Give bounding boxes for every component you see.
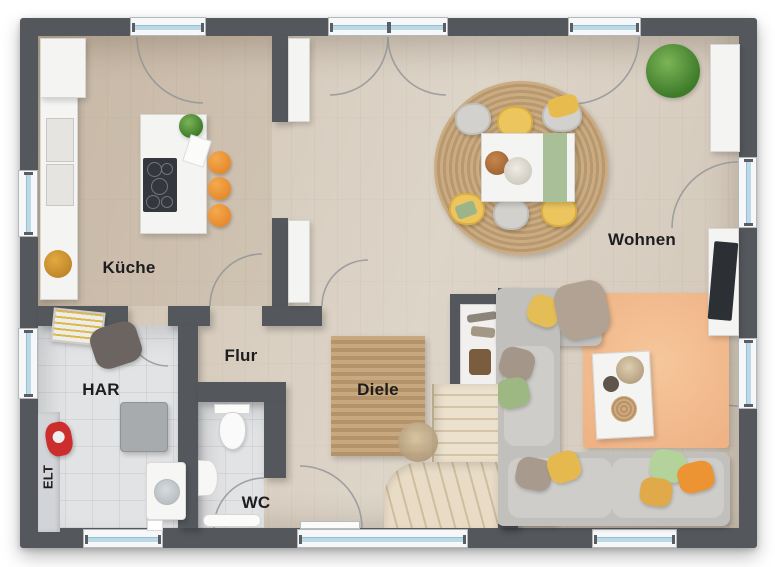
wall-kitchen-diele — [272, 218, 288, 306]
dining-chair — [493, 198, 529, 230]
tall-cabinet-south — [288, 220, 310, 303]
vase — [603, 376, 619, 392]
bar-stool — [208, 151, 231, 174]
terrace-door-right-upper — [738, 157, 757, 228]
wall-flur-diele — [262, 306, 322, 326]
window-har-bottom — [83, 529, 163, 548]
flower-centerpiece — [504, 157, 532, 185]
sideboard — [710, 44, 740, 152]
fruit-basket — [44, 250, 72, 278]
storage-box — [120, 402, 168, 452]
dried-plant-vase — [616, 356, 644, 384]
shower-tray — [203, 514, 261, 527]
entrance-door — [297, 529, 468, 548]
room-label-elt: ELT — [41, 465, 56, 489]
window-kitchen-left — [18, 170, 38, 237]
table-runner — [543, 133, 567, 202]
pillow-yellow — [638, 476, 674, 508]
french-door-top-center — [328, 17, 448, 36]
wall-wc-north — [198, 382, 286, 402]
bag — [469, 349, 491, 375]
toilet — [219, 412, 246, 450]
bar-stool — [208, 177, 231, 200]
door-wohnen-top — [568, 17, 641, 36]
entrance-door-leaf — [300, 521, 360, 529]
coat-hanger — [471, 326, 496, 338]
wall-kitchen-har-mid — [168, 306, 210, 326]
terrace-door-right-lower — [738, 338, 757, 409]
counter-shelf — [46, 164, 74, 206]
window-kitchen-top — [130, 17, 206, 36]
stairs-lower-flight — [384, 462, 498, 528]
room-label-flur: Flur — [225, 346, 258, 366]
stairs-upper-flight — [432, 384, 498, 464]
room-label-wohnen: Wohnen — [608, 230, 676, 250]
room-label-wc: WC — [242, 493, 271, 513]
decor-tray — [611, 396, 637, 422]
coat-hanger — [467, 311, 498, 323]
cooktop — [143, 158, 177, 212]
washing-machine — [146, 462, 186, 520]
wall-kitchen-top-stub — [272, 36, 288, 122]
bar-stool — [208, 204, 231, 227]
counter-shelf — [46, 118, 74, 162]
dried-grass-plant — [398, 422, 438, 462]
corner-plant — [646, 44, 700, 98]
wash-basin — [198, 460, 218, 496]
fridge — [40, 38, 86, 98]
window-har-left — [18, 328, 38, 399]
room-label-diele: Diele — [357, 380, 399, 400]
wall-wc-east — [264, 402, 286, 478]
detergent-box — [147, 520, 163, 531]
room-label-kueche: Küche — [103, 258, 156, 278]
room-label-har: HAR — [82, 380, 119, 400]
window-wohnen-bottom — [592, 529, 677, 548]
tall-cabinet-north — [288, 38, 310, 122]
floor-plan: Küche Wohnen Flur HAR Diele WC ELT — [0, 0, 775, 567]
